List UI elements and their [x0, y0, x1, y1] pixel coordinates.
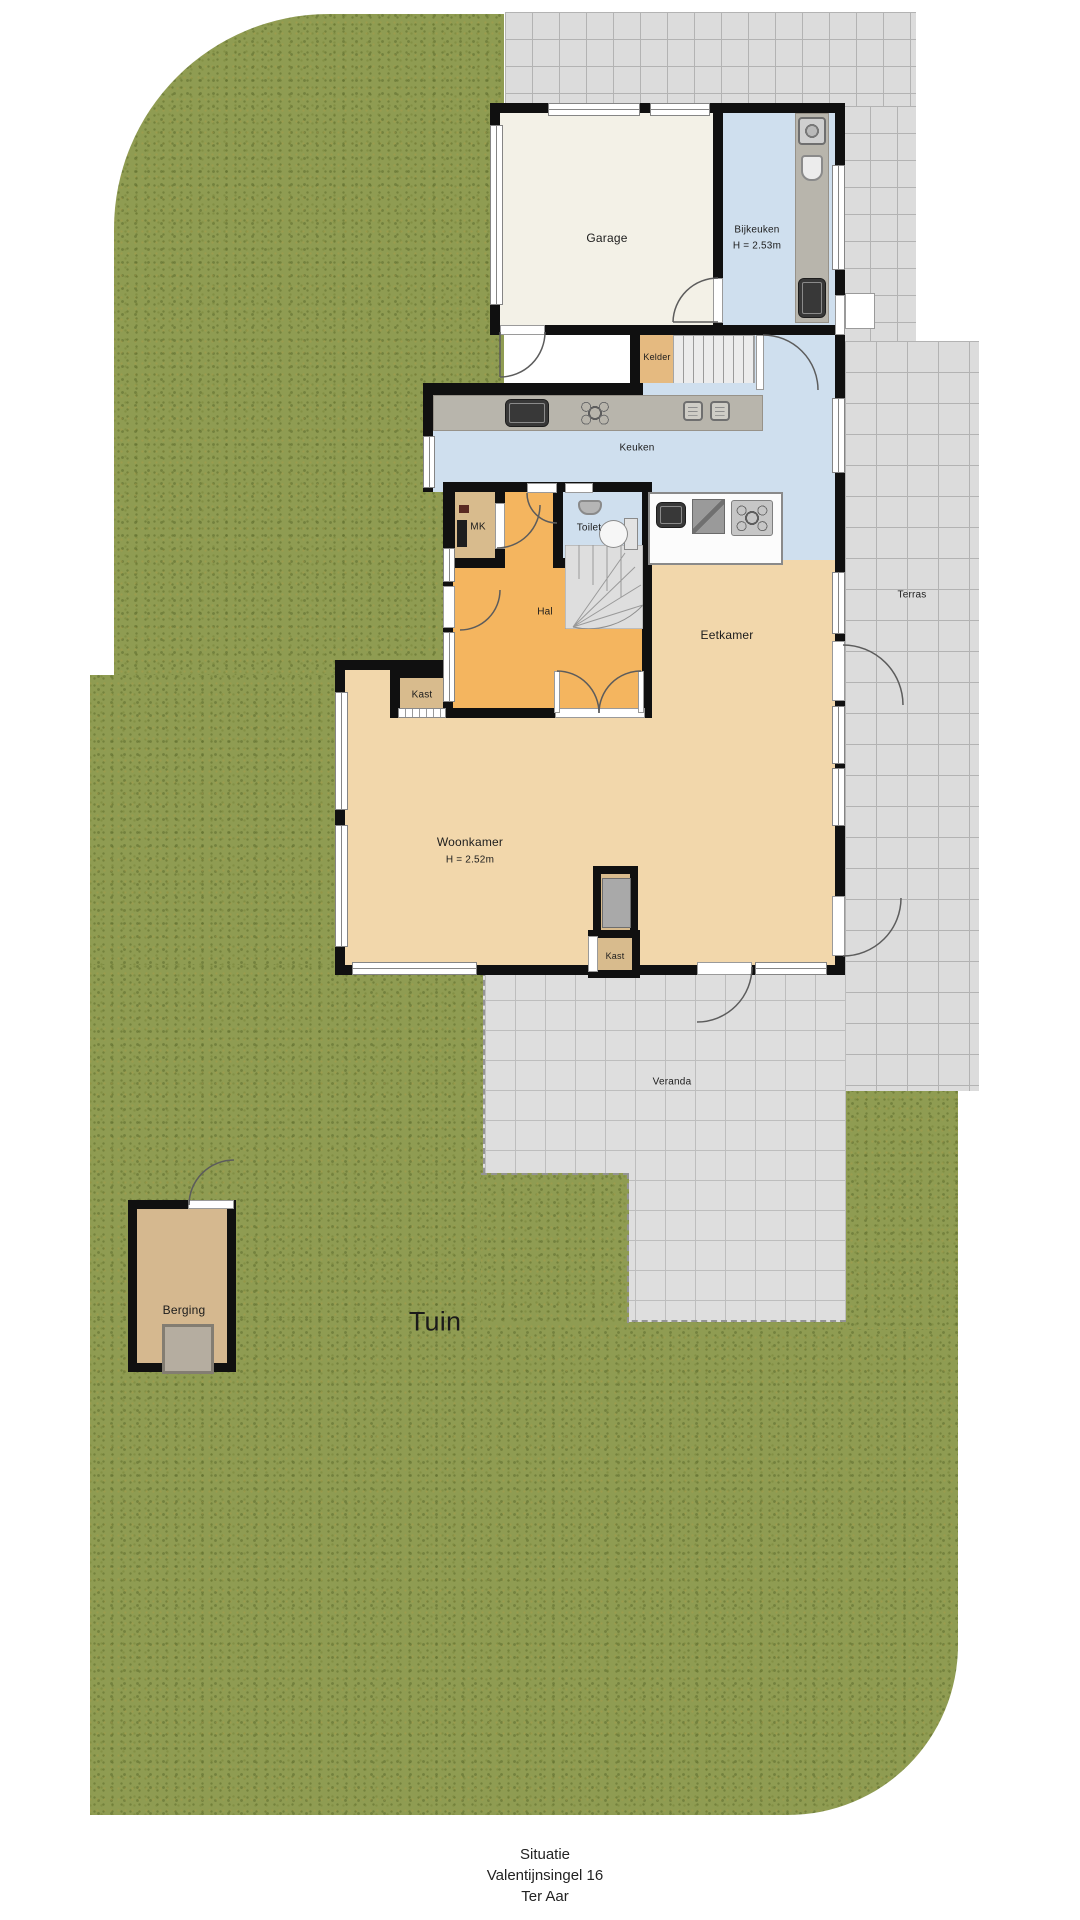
berging-square-icon: [162, 1324, 214, 1374]
back-door-leaf: [835, 295, 845, 335]
eetkamer-window-right-2: [832, 706, 845, 764]
bijkeuken-sink-icon: [798, 278, 826, 318]
room-garage: [490, 103, 723, 335]
veranda-door-leaf: [697, 962, 752, 975]
caption-address: Valentijnsingel 16: [487, 1865, 603, 1886]
oven-icon: [683, 401, 703, 421]
hal-double-door-opening: [555, 708, 645, 718]
floorplan-canvas: Garage Bijkeuken H = 2.53m Kelder Keuken…: [0, 0, 1080, 1920]
caption: Situatie Valentijnsingel 16 Ter Aar: [487, 1844, 603, 1907]
room-eetkamer: [630, 560, 845, 975]
woonkamer-window-left-1: [335, 692, 348, 810]
grass-veranda-notch: [481, 1173, 629, 1323]
dishwasher-icon: [692, 499, 725, 534]
bijkeuken-window-right: [832, 165, 845, 270]
area-label-veranda: Veranda: [653, 1077, 692, 1088]
room-label-toilet: Toilet: [577, 523, 602, 534]
wall-keuken-top: [423, 383, 643, 395]
room-label-berging: Berging: [163, 1303, 206, 1317]
terras-tiles: [845, 341, 979, 1091]
hal-window-left-1: [443, 548, 455, 582]
hal-double-door-right-leaf: [638, 671, 644, 713]
grass-right-column: [844, 1089, 958, 1329]
room-label-garage: Garage: [586, 231, 627, 245]
garage-door-left: [490, 125, 503, 305]
room-label-mk: MK: [470, 522, 485, 533]
grass-bottom: [90, 1318, 958, 1815]
eetkamer-window-bottom: [755, 962, 827, 975]
room-label-woonkamer: Woonkamer: [437, 835, 503, 849]
room-label-kelder: Kelder: [643, 352, 670, 362]
toilet-bowl-icon: [599, 520, 628, 548]
eetkamer-window-right-3: [832, 768, 845, 826]
island-hob-icon: [731, 500, 773, 536]
meter-box-icon: [459, 505, 469, 513]
berging-door-leaf: [188, 1200, 234, 1209]
kitchen-sink-icon: [505, 399, 549, 427]
terras-door-upper-leaf: [832, 641, 845, 701]
meter-cabinet-icon: [457, 520, 467, 547]
garage-window-top-1: [548, 103, 640, 116]
area-label-terras: Terras: [898, 590, 927, 601]
niche-cabinet-icon: [602, 878, 631, 928]
driveway-tiles-top: [505, 12, 916, 106]
room-label-bijkeuken: Bijkeuken: [734, 225, 779, 236]
mk-door-leaf: [495, 503, 505, 549]
kitchen-hob-icon: [578, 399, 612, 427]
keuken-window-right: [832, 398, 845, 473]
hal-window-left-2: [443, 632, 455, 702]
room-label-bijkeuken-height: H = 2.53m: [733, 241, 781, 252]
stairs-door-leaf: [756, 335, 764, 390]
caption-title: Situatie: [487, 1844, 603, 1865]
woonkamer-window-left-2: [335, 825, 348, 947]
washing-machine-icon: [798, 117, 826, 145]
boiler-icon: [801, 155, 823, 181]
room-label-kast-bottom: Kast: [606, 951, 625, 961]
eetkamer-window-right-1: [832, 572, 845, 634]
microwave-icon: [710, 401, 730, 421]
hal-keuken-door-leaf: [527, 483, 557, 493]
back-doorstep: [845, 293, 875, 329]
island-sink-icon: [656, 502, 686, 528]
kast-top-louvre-doors: [398, 708, 446, 718]
room-label-keuken: Keuken: [619, 443, 654, 454]
door-arc-garage-side: [500, 332, 545, 377]
keuken-window-left: [423, 436, 435, 488]
terras-door-lower-leaf: [832, 896, 845, 956]
kast-bottom-door-leaf: [588, 936, 598, 972]
room-label-eetkamer: Eetkamer: [701, 628, 754, 642]
garage-window-top-2: [650, 103, 710, 116]
garage-bijkeuken-door-leaf: [713, 278, 723, 323]
toilet-door-leaf: [565, 483, 593, 493]
front-door-leaf: [443, 586, 455, 628]
room-label-woonkamer-height: H = 2.52m: [446, 855, 494, 866]
hal-double-door-left-leaf: [554, 671, 560, 713]
room-label-hal: Hal: [537, 607, 553, 618]
caption-city: Ter Aar: [487, 1886, 603, 1907]
woonkamer-window-bottom: [352, 962, 477, 975]
room-label-kast-top: Kast: [412, 690, 433, 701]
area-label-tuin: Tuin: [409, 1307, 461, 1338]
garage-side-door-leaf: [500, 325, 545, 335]
